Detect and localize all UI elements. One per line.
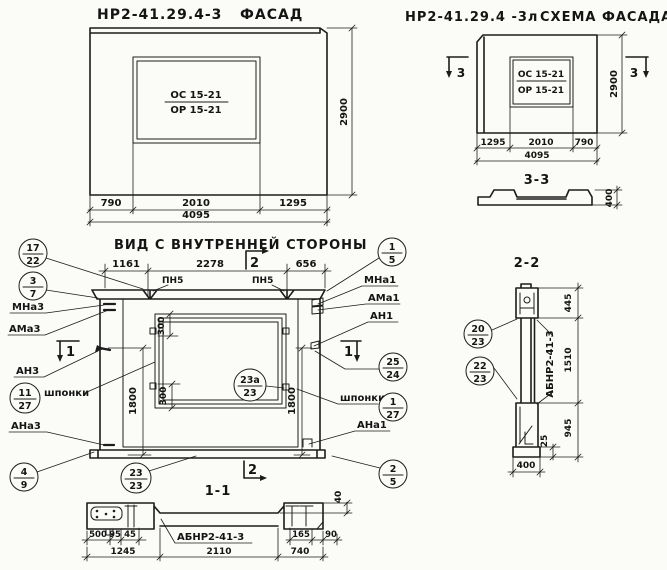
facade-view: НР2-41.29.4-3 ФАСАД ОС 15-21 ОР 15-21 79… bbox=[87, 7, 357, 226]
rebar-dot bbox=[113, 516, 116, 519]
callout-1-27-top: 1 bbox=[390, 397, 397, 408]
callout-17-22-bottom: 22 bbox=[26, 256, 39, 267]
section-marker-1-left-label: 1 bbox=[66, 345, 75, 360]
inner-pn5-label-2: ПН5 bbox=[252, 276, 273, 286]
section-1-1-view: 1-1 500 95 45 165 90 1245 2110 740 40 АБ… bbox=[82, 484, 352, 561]
callout-11-27: 11 27 bbox=[10, 383, 40, 413]
section-2-2-view: 2-2 АБНР2-41-3 445 1510 945 25 400 20 23… bbox=[464, 256, 583, 477]
rebar-dot bbox=[105, 513, 108, 516]
section-2-2-dim-25: 25 bbox=[540, 435, 550, 448]
inner-dim-side-right: 1800 bbox=[287, 387, 298, 415]
section-marker-2-bottom-label: 2 bbox=[248, 463, 257, 478]
section-marker-3-right-arrow bbox=[643, 71, 649, 78]
callout-leaders-section-2-2 bbox=[492, 319, 517, 399]
callout-1-5-top: 1 bbox=[389, 242, 396, 253]
facade-dim-total: 4095 bbox=[182, 210, 210, 221]
inner-side-dim-lines bbox=[108, 311, 312, 458]
schema-dim-height: 2900 bbox=[609, 70, 620, 98]
inner-panel-rib-edges bbox=[123, 299, 298, 447]
section-1-1-beam-label: АБНР2-41-3 bbox=[177, 532, 244, 543]
facade-window-mark-bottom: ОР 15-21 bbox=[170, 105, 221, 116]
callout-25-24-bottom: 24 bbox=[386, 370, 400, 381]
section-marker-1-right-label: 1 bbox=[344, 345, 353, 360]
inner-anchor-marks-left bbox=[100, 304, 115, 445]
facade-dim-left: 790 bbox=[101, 198, 122, 209]
section-1-1-dim-95: 95 bbox=[109, 530, 121, 540]
section-marker-3-left-label: 3 bbox=[457, 66, 465, 80]
callout-20-23-top: 20 bbox=[471, 324, 485, 335]
callout-3-7-bottom: 7 bbox=[30, 289, 37, 300]
label-mna1: МНа1 bbox=[364, 275, 396, 286]
schema-window-mark-top: ОС 15-21 bbox=[518, 70, 564, 80]
callout-4-9: 4 9 bbox=[10, 463, 38, 491]
section-2-2-beam-label: АБНР2-41-3 bbox=[545, 330, 556, 397]
callout-23a-23: 23а 23 bbox=[234, 369, 266, 401]
section-1-1-internal-bars bbox=[106, 505, 323, 535]
section-1-1-dim-2110: 2110 bbox=[206, 547, 231, 557]
callout-20-23: 20 23 bbox=[464, 320, 492, 348]
section-1-1-dim-45: 45 bbox=[124, 530, 136, 540]
callout-2-5-top: 2 bbox=[390, 464, 397, 475]
callout-23-23-top: 23 bbox=[129, 468, 142, 479]
section-3-3-profile bbox=[478, 190, 592, 205]
inner-dim-top-right: 656 bbox=[296, 259, 317, 270]
facade-title: ФАСАД bbox=[240, 7, 303, 23]
inner-pn5-label-1: ПН5 bbox=[162, 276, 183, 286]
section-2-2-title: 2-2 bbox=[514, 256, 541, 271]
facade-dimension-lines bbox=[87, 25, 357, 226]
callout-2-5-bottom: 5 bbox=[390, 477, 397, 488]
callout-1-5-bottom: 5 bbox=[389, 255, 396, 266]
label-mna3: МНа3 bbox=[12, 302, 44, 313]
section-1-1-rebar-dots bbox=[96, 510, 116, 519]
inner-dim-side-left: 1800 bbox=[128, 387, 139, 415]
callout-11-27-bottom: 27 bbox=[18, 401, 31, 412]
callout-1-27-bottom: 27 bbox=[386, 410, 399, 421]
callout-1-5: 1 5 bbox=[378, 238, 406, 266]
callout-3-7-top: 3 bbox=[30, 276, 37, 287]
section-1-1-title: 1-1 bbox=[205, 484, 232, 499]
schema-code: НР2-41.29.4 -3л bbox=[405, 10, 538, 25]
section-1-1-dim-1245: 1245 bbox=[110, 547, 135, 557]
section-1-1-dim-40: 40 bbox=[334, 491, 344, 504]
callout-4-9-bottom: 9 bbox=[21, 480, 28, 491]
callout-23a-23-bottom: 23 bbox=[243, 388, 256, 399]
schema-dim-right: 790 bbox=[575, 138, 594, 148]
section-2-2-dim-445: 445 bbox=[564, 294, 574, 313]
section-2-2-anchor-loop bbox=[524, 297, 530, 303]
section-2-2-dim-1510: 1510 bbox=[564, 347, 574, 372]
section-1-1-dim-90: 90 bbox=[325, 530, 337, 540]
callout-23-23: 23 23 bbox=[121, 463, 151, 493]
callout-17-22-top: 17 bbox=[26, 243, 39, 254]
facade-dim-right: 1295 bbox=[279, 198, 307, 209]
callout-22-23-bottom: 23 bbox=[473, 374, 486, 385]
label-ana1: АНа1 bbox=[357, 420, 387, 431]
callout-25-24: 25 24 bbox=[379, 353, 407, 381]
drawing-canvas: НР2-41.29.4-3 ФАСАД ОС 15-21 ОР 15-21 79… bbox=[0, 0, 667, 570]
inner-view-title: ВИД С ВНУТРЕННЕЙ СТОРОНЫ bbox=[114, 237, 367, 253]
label-ana3: АНа3 bbox=[11, 421, 41, 432]
callout-3-7: 3 7 bbox=[19, 272, 47, 300]
section-2-2-outline bbox=[513, 284, 540, 457]
section-2-2-dim-945: 945 bbox=[564, 419, 574, 438]
schema-panel-outline bbox=[477, 35, 597, 133]
inner-panel-outline bbox=[90, 290, 325, 458]
inner-window-shponka-tabs bbox=[150, 328, 289, 390]
section-2-2-dim-400: 400 bbox=[517, 461, 536, 471]
section-marker-1-left-arrow bbox=[57, 355, 63, 362]
schema-title: СХЕМА ФАСАДА bbox=[540, 10, 667, 25]
label-shponki-right: шпонки bbox=[340, 393, 385, 404]
label-ama1: АМа1 bbox=[368, 293, 399, 304]
callout-4-9-top: 4 bbox=[21, 467, 28, 478]
callout-22-23: 22 23 bbox=[466, 357, 494, 385]
section-1-1-dim-165: 165 bbox=[292, 530, 310, 540]
section-1-1-dim-500: 500 bbox=[89, 530, 107, 540]
callout-20-23-bottom: 23 bbox=[471, 337, 484, 348]
section-marker-2-top: 2 bbox=[246, 248, 269, 271]
section-marker-3-left: 3 bbox=[446, 57, 468, 80]
section-marker-3-right-label: 3 bbox=[630, 66, 638, 80]
facade-dim-height: 2900 bbox=[339, 98, 350, 126]
drawing-sheet: НР2-41.29.4-3 ФАСАД ОС 15-21 ОР 15-21 79… bbox=[0, 0, 667, 570]
callout-23-23-bottom: 23 bbox=[129, 481, 142, 492]
callout-2-5: 2 5 bbox=[379, 460, 407, 488]
label-an1: АН1 bbox=[370, 311, 393, 322]
rebar-dot bbox=[96, 510, 99, 513]
inner-dim-win-bottom: 300 bbox=[159, 387, 169, 406]
schema-window-mark-bottom: ОР 15-21 bbox=[518, 86, 564, 96]
label-shponki-left: шпонки bbox=[44, 388, 89, 399]
callout-17-22: 17 22 bbox=[19, 239, 47, 267]
callout-25-24-top: 25 bbox=[386, 357, 399, 368]
inner-dim-win-top: 300 bbox=[157, 317, 167, 336]
section-marker-3-left-arrow bbox=[446, 71, 452, 78]
schema-dim-left: 1295 bbox=[480, 138, 505, 148]
inner-window-frame bbox=[155, 314, 286, 408]
section-marker-2-bottom: 2 bbox=[244, 461, 267, 481]
section-marker-2-bottom-arrow bbox=[260, 475, 267, 481]
label-ama3: АМа3 bbox=[9, 324, 40, 335]
section-marker-3-right: 3 bbox=[626, 57, 649, 80]
callout-22-23-top: 22 bbox=[473, 361, 486, 372]
rebar-dot bbox=[96, 516, 99, 519]
section-3-3-view: 3-3 400 bbox=[478, 173, 622, 209]
inner-dim-top-left: 1161 bbox=[112, 259, 140, 270]
schema-window-frame bbox=[510, 57, 573, 107]
label-an3: АН3 bbox=[16, 366, 39, 377]
facade-code: НР2-41.29.4-3 bbox=[97, 7, 222, 23]
section-marker-1-right: 1 bbox=[341, 341, 361, 362]
callout-11-27-top: 11 bbox=[18, 388, 31, 399]
facade-window-mark-top: ОС 15-21 bbox=[170, 90, 221, 101]
section-3-3-thickness: 400 bbox=[605, 189, 615, 208]
section-3-3-title: 3-3 bbox=[524, 173, 551, 188]
schema-view: НР2-41.29.4 -3л СХЕМА ФАСАДА ОС 15-21 ОР… bbox=[405, 10, 667, 165]
section-1-1-dim-740: 740 bbox=[291, 547, 310, 557]
callout-1-27: 1 27 bbox=[379, 393, 407, 421]
section-marker-1-left: 1 bbox=[57, 341, 79, 362]
schema-dim-total: 4095 bbox=[524, 151, 549, 161]
section-marker-1-right-arrow bbox=[354, 355, 360, 362]
inner-view: ВИД С ВНУТРЕННЕЙ СТОРОНЫ 1161 2278 656 П… bbox=[8, 237, 407, 493]
facade-dim-mid: 2010 bbox=[182, 198, 210, 209]
rebar-dot bbox=[113, 510, 116, 513]
section-marker-2-top-label: 2 bbox=[250, 256, 259, 271]
inner-dim-top-mid: 2278 bbox=[196, 259, 224, 270]
callout-23a-23-top: 23а bbox=[240, 375, 260, 386]
schema-dim-mid: 2010 bbox=[528, 138, 553, 148]
